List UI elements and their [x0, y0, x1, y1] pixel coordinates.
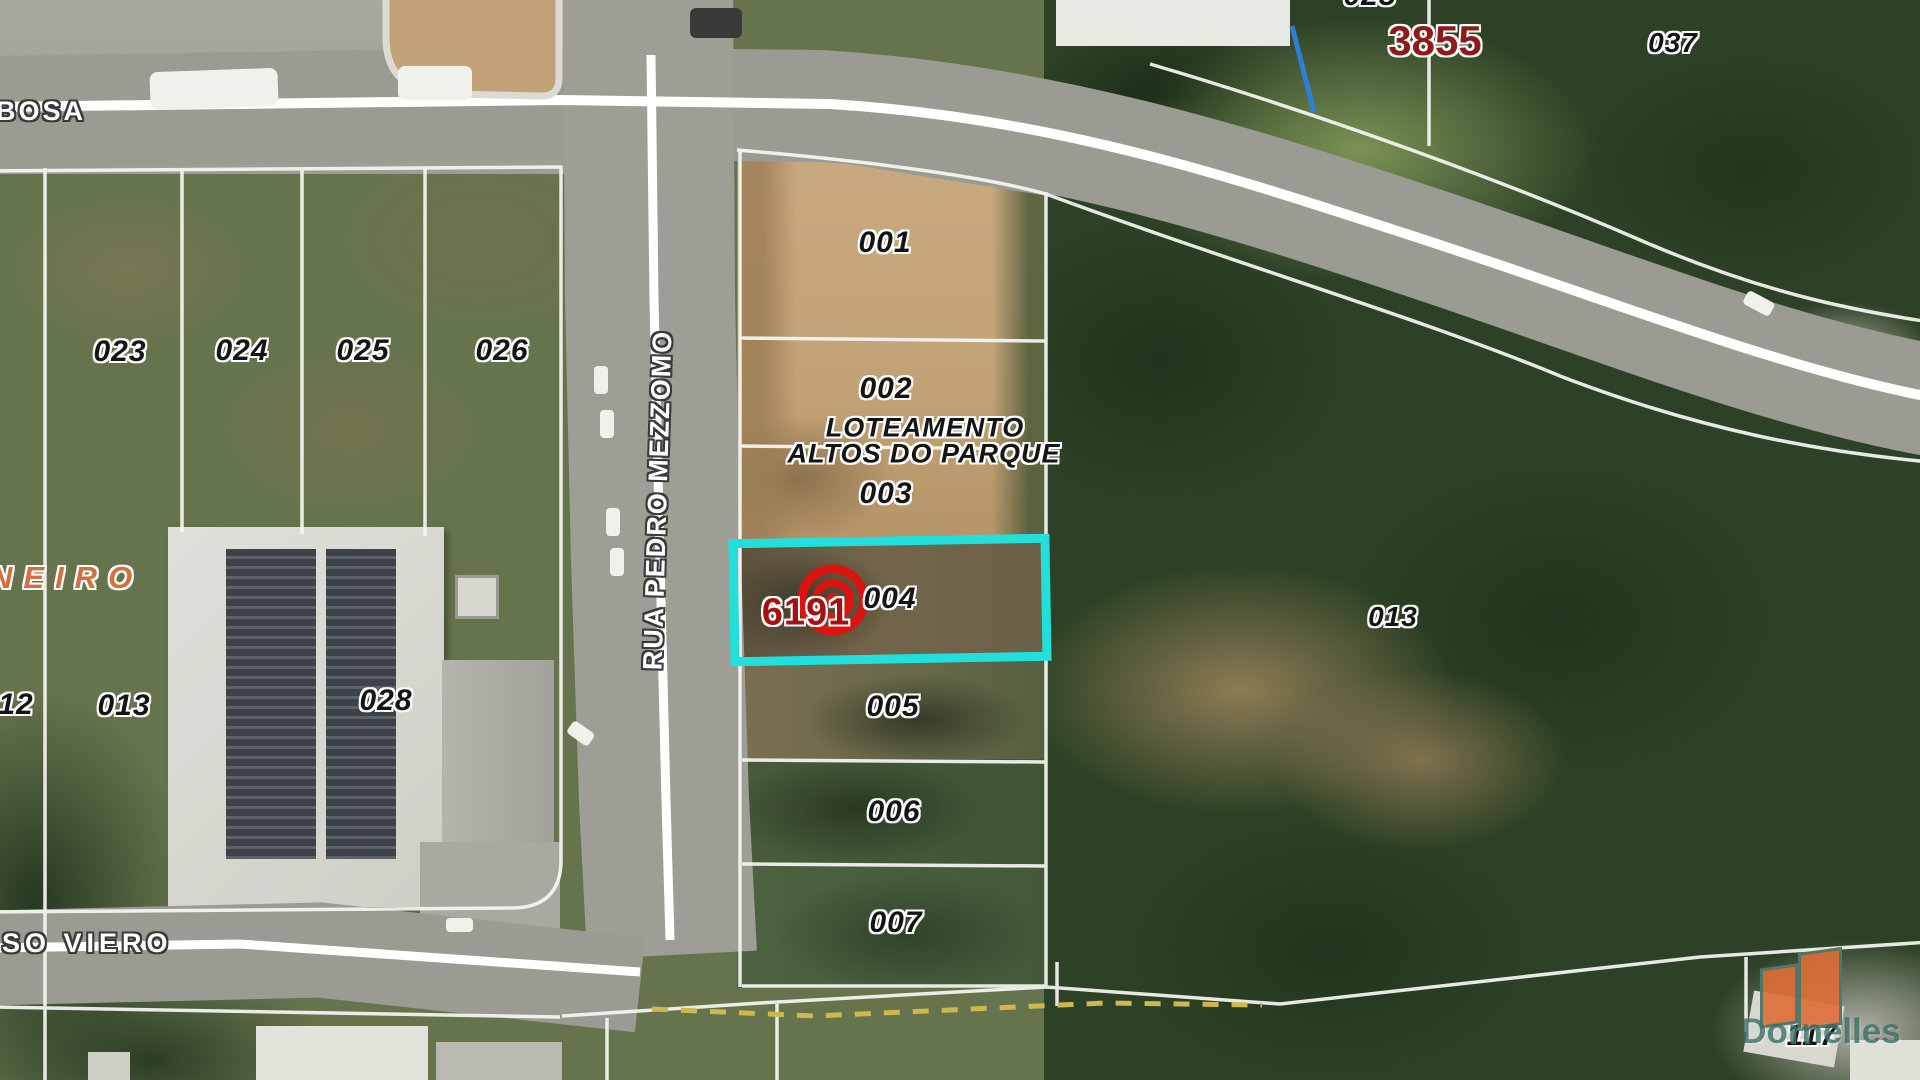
aerial-cadastral-map[interactable]: BOSA RUA PEDRO MEZZOMO SO VIERO NEIRO 02…	[0, 0, 1920, 1080]
development-name-line2: ALTOS DO PARQUE	[787, 439, 1060, 470]
lot-label-028: 028	[359, 684, 412, 718]
lot-label-002: 002	[859, 372, 912, 406]
watermark-brand: Dornelles	[1726, 1012, 1916, 1052]
street-label-bottom: SO VIERO	[2, 928, 173, 959]
lot-label-023: 023	[93, 335, 146, 369]
agency-watermark: Dornelles	[1712, 946, 1920, 1066]
blue-line	[1292, 26, 1314, 112]
lot-label-003: 003	[859, 477, 912, 511]
district-label-partial: NEIRO	[0, 560, 143, 596]
listing-code-label: 6191	[762, 592, 851, 635]
lot-label-006: 006	[867, 795, 920, 829]
lot-label-005: 005	[866, 690, 919, 724]
lot-label-004: 004	[863, 582, 916, 616]
lot-label-037: 037	[1648, 27, 1698, 59]
lot-label-013-right: 013	[1368, 601, 1418, 633]
ref-code-label: 3855	[1388, 17, 1481, 65]
lot-label-001: 001	[858, 226, 911, 260]
street-label-top: BOSA	[0, 96, 86, 127]
lot-label-026: 026	[475, 334, 528, 368]
map-overlay-lines	[0, 0, 1920, 1080]
lot-label-024: 024	[215, 334, 268, 368]
lot-label-013-left: 013	[97, 689, 150, 723]
lot-label-025: 025	[336, 334, 389, 368]
lot-label-012-partial: 12	[0, 688, 34, 722]
lot-label-025-top-partial: 025	[1343, 0, 1396, 13]
lot-label-007: 007	[869, 906, 922, 940]
